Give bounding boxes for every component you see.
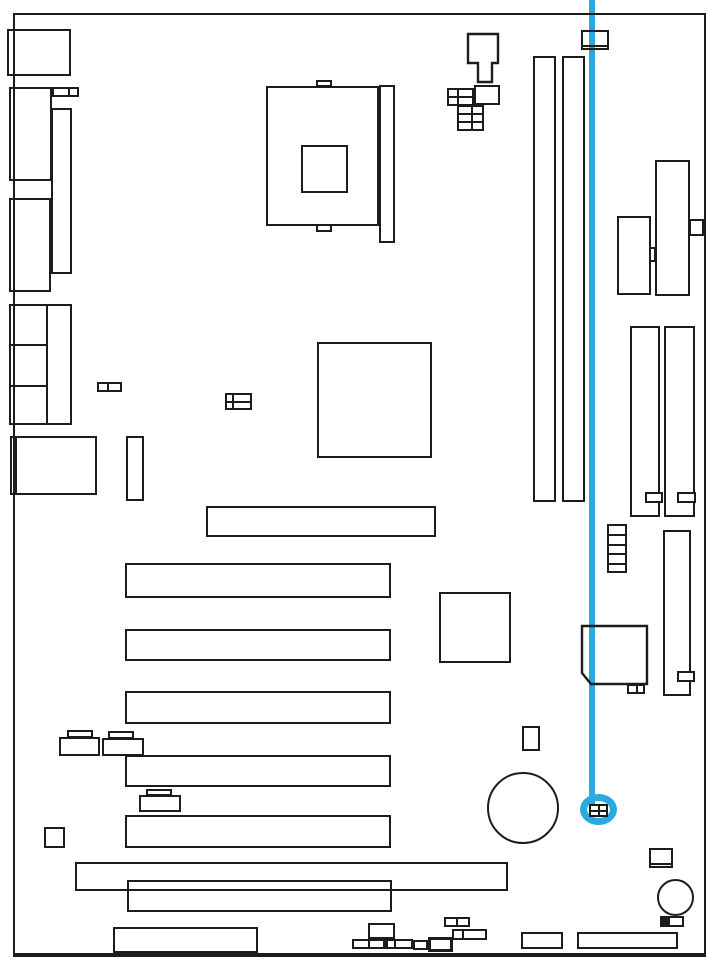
conn-bottom-mid xyxy=(521,932,563,949)
tall-slot-se-tab xyxy=(677,671,695,682)
ladder-conn-divider xyxy=(607,544,627,546)
cluster-square xyxy=(368,923,395,939)
conn-top-right xyxy=(581,30,609,50)
right-slot-2 xyxy=(664,326,695,517)
conn-grid-2x3 xyxy=(457,105,484,131)
cluster-row-divider xyxy=(368,939,370,949)
cluster-2cell-a-divider xyxy=(456,917,458,927)
dimm-slot-2 xyxy=(562,56,585,502)
conn-grid-2x2 xyxy=(447,88,474,106)
io-conn-2cell-divider xyxy=(68,87,70,97)
slot-agp xyxy=(206,506,436,537)
cluster-2cell-a xyxy=(444,917,470,927)
io-port-4 xyxy=(10,436,97,495)
cluster-row-divider xyxy=(394,939,396,949)
conn-2cell-mid-divider xyxy=(107,382,109,392)
io-port-top xyxy=(7,29,71,76)
chip-ne xyxy=(655,160,690,296)
southbridge-conn xyxy=(627,684,645,694)
rect-ne xyxy=(617,216,651,295)
slot-bottom-2 xyxy=(127,880,392,912)
cpu-retention-bar xyxy=(379,85,395,243)
southbridge-conn-divider xyxy=(636,684,638,694)
battery xyxy=(487,772,559,844)
cluster-cell xyxy=(413,940,428,950)
io-port-group xyxy=(9,304,72,425)
conn-2cell-mid xyxy=(97,382,122,392)
io-port-4-divider xyxy=(15,436,17,495)
conn-se-2cell-divider xyxy=(668,916,670,927)
northbridge-chip xyxy=(317,342,432,458)
diagram-canvas xyxy=(0,0,719,972)
jumper-c-body xyxy=(139,795,181,812)
buzzer xyxy=(657,879,694,916)
io-port-group-divider xyxy=(46,304,48,425)
highlighted-jumper xyxy=(589,804,608,817)
ladder-conn-divider xyxy=(607,553,627,555)
right-slot-1-key xyxy=(645,492,663,503)
io-port-group-divider xyxy=(9,385,46,387)
highlighted-jumper-divider xyxy=(589,810,608,812)
conn-se-2cell-cell xyxy=(660,916,668,927)
io-port-2 xyxy=(9,87,52,181)
vert-conn-mid xyxy=(126,436,144,501)
conn-grid-2x3-divider xyxy=(457,113,484,115)
ladder-conn-divider xyxy=(607,563,627,565)
cpu-die xyxy=(301,145,348,193)
conn-rect-top xyxy=(474,85,500,105)
cluster-row-cell xyxy=(383,939,388,949)
io-conn-2cell xyxy=(52,87,79,97)
cluster-row xyxy=(352,939,413,949)
conn-grid-2x3-divider xyxy=(471,105,473,131)
conn-bottom-right xyxy=(577,932,678,949)
conn-top-right-divider xyxy=(581,45,609,47)
right-slot-2-key xyxy=(677,492,696,503)
square-small-sw xyxy=(44,827,65,848)
right-slot-1 xyxy=(630,326,660,517)
io-stack-bar xyxy=(51,108,72,274)
cluster-2cell-b-divider xyxy=(462,929,464,940)
conn-grid-2x2-divider xyxy=(447,96,474,98)
pci-slot-1 xyxy=(125,563,391,598)
motherboard-diagram xyxy=(0,0,719,972)
conn-se-2cell xyxy=(660,916,684,927)
front-panel-header xyxy=(113,927,258,953)
pci-slot-5 xyxy=(125,815,391,848)
pci-slot-4 xyxy=(125,755,391,787)
jumper-a-body xyxy=(59,737,100,756)
jumper-b-body xyxy=(102,738,144,756)
conn-grid-4cell xyxy=(225,393,252,410)
cpu-tab-bottom xyxy=(316,224,332,232)
cluster-2cell-b xyxy=(452,929,487,940)
chip-ne-tab xyxy=(689,219,704,236)
cluster-thick xyxy=(428,937,453,952)
ladder-conn xyxy=(607,524,627,573)
conn-grid-4cell-divider xyxy=(225,401,252,403)
io-port-group-divider xyxy=(9,344,46,346)
conn-grid-2x3-divider xyxy=(457,121,484,123)
conn-se-boxed xyxy=(649,848,673,868)
conn-se-boxed-divider xyxy=(649,863,673,865)
vert-conn-low xyxy=(522,726,540,751)
pci-slot-2 xyxy=(125,629,391,661)
chip-center-2 xyxy=(439,592,511,663)
pci-slot-3 xyxy=(125,691,391,724)
dimm-slot-1 xyxy=(533,56,556,502)
io-port-3 xyxy=(9,198,51,292)
ladder-conn-divider xyxy=(607,534,627,536)
